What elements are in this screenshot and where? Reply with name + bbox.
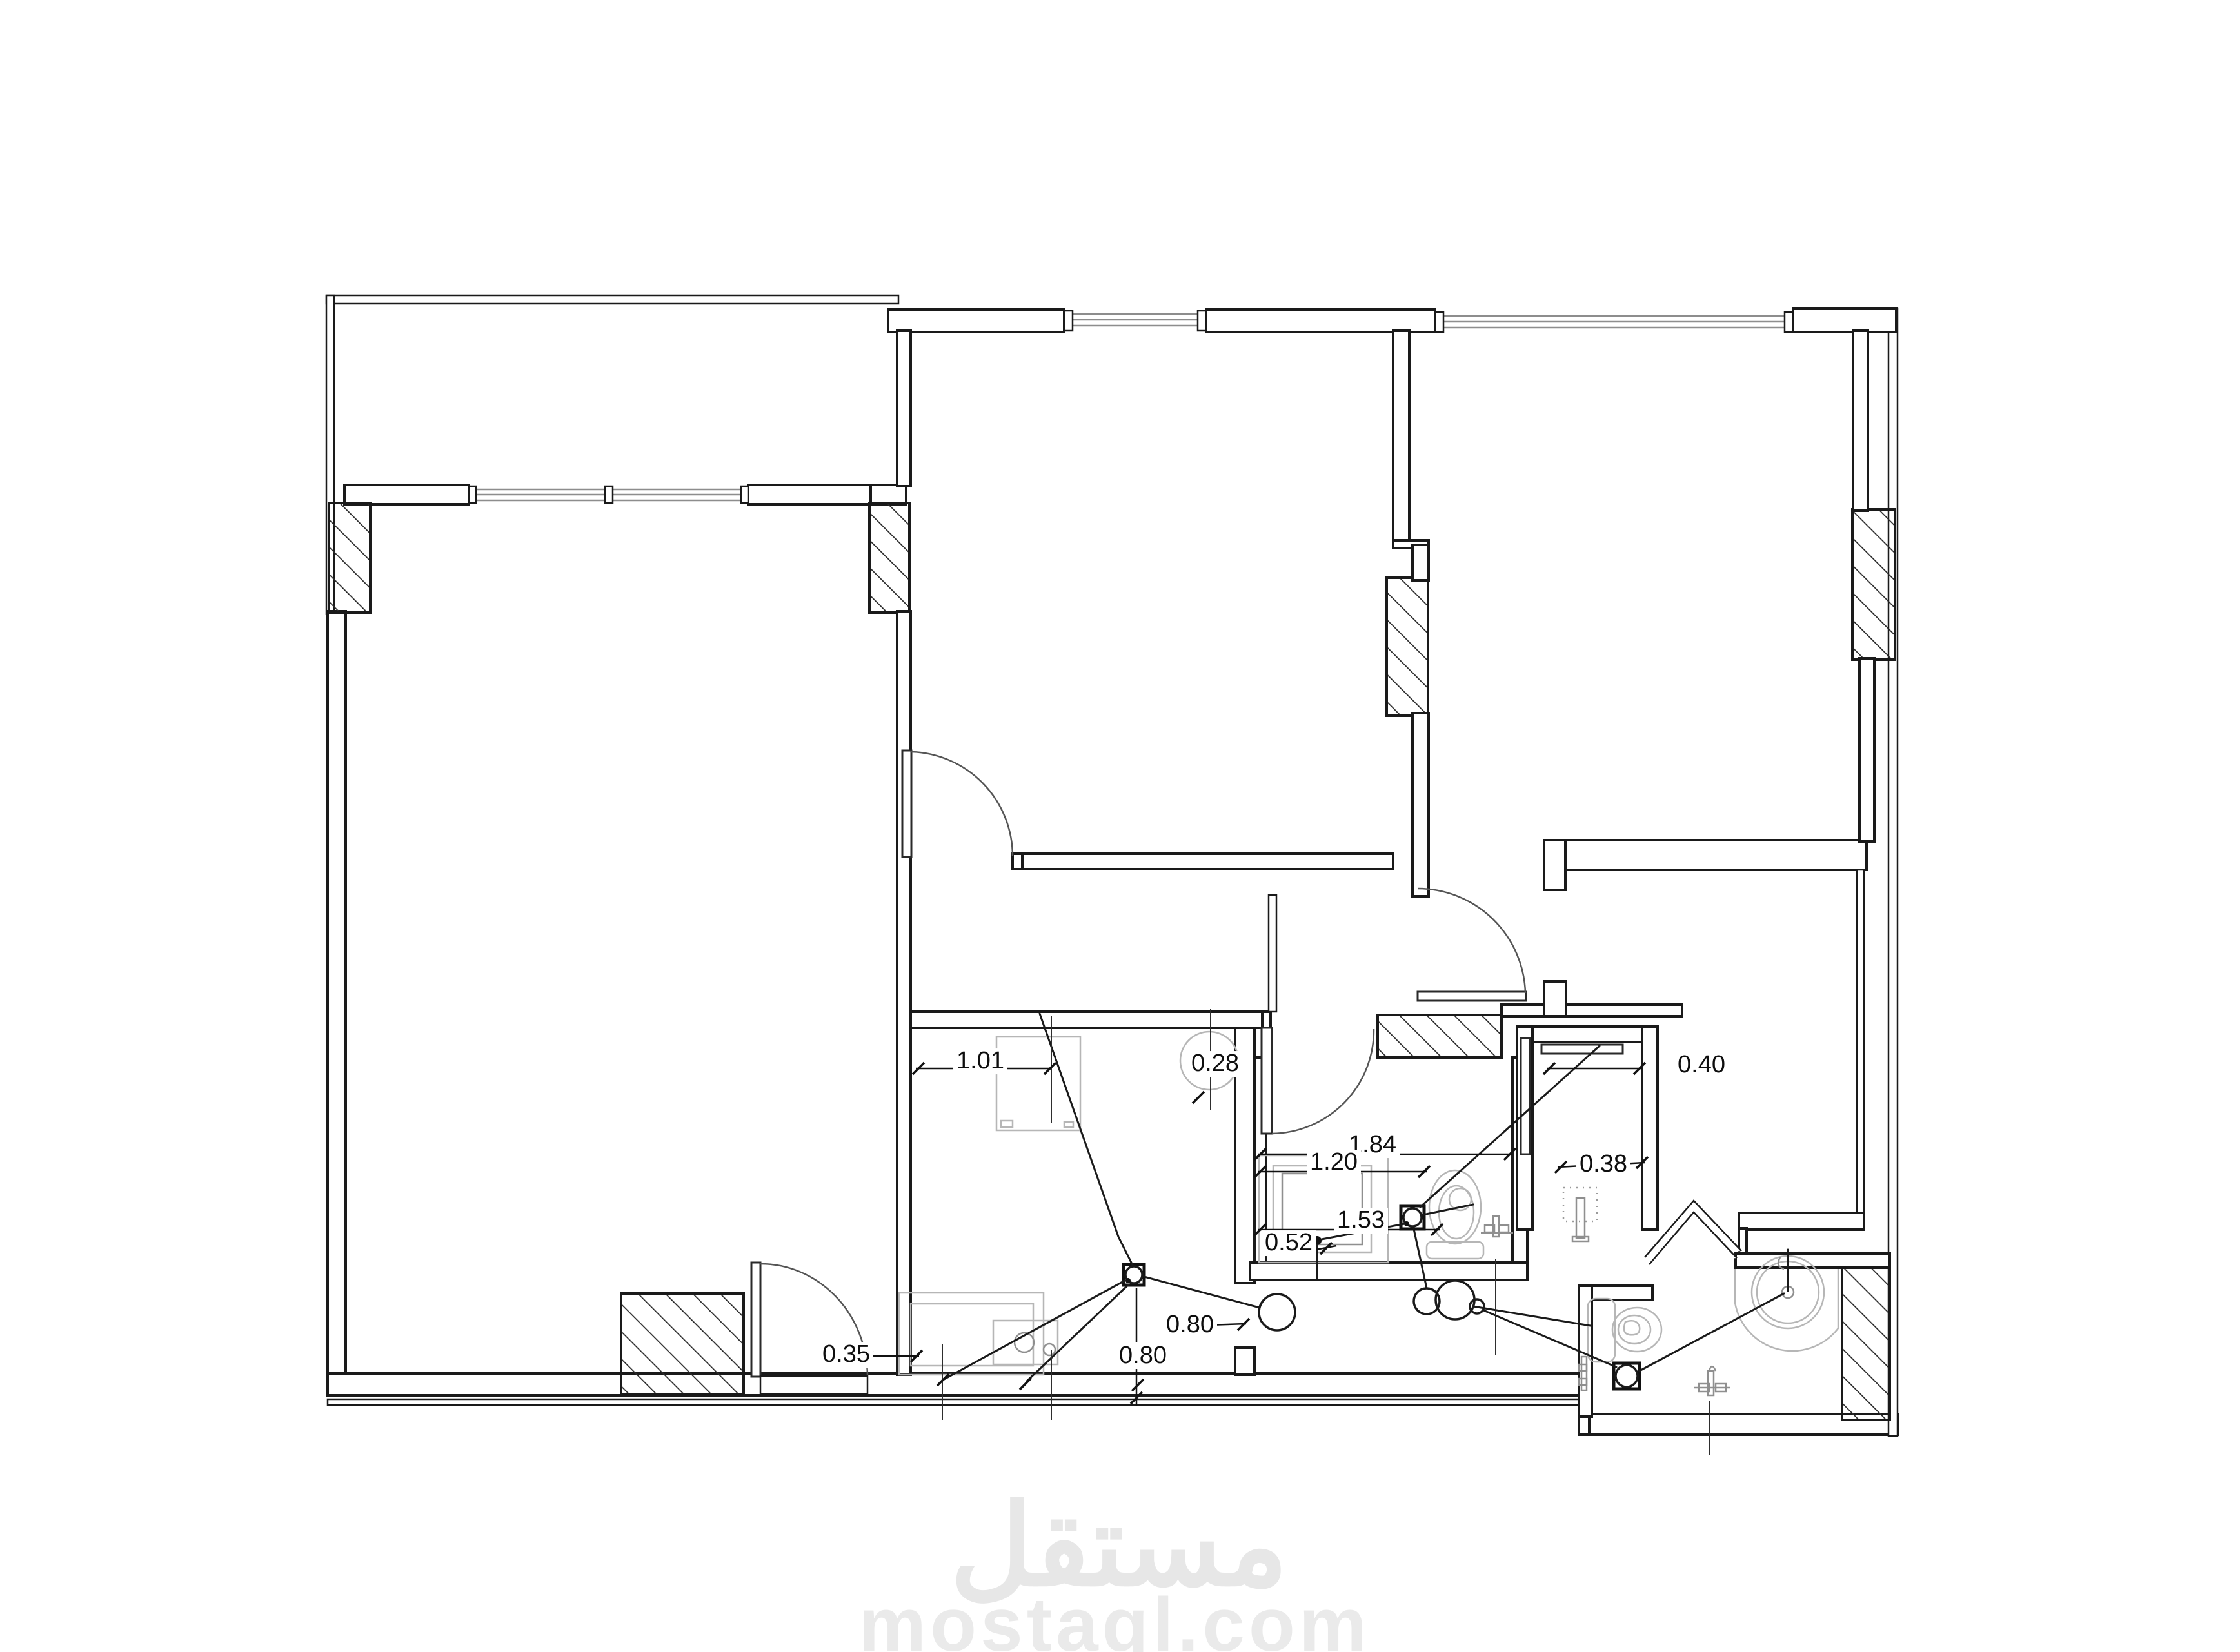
wc-faucet xyxy=(1481,1216,1513,1237)
kitchen-appliance xyxy=(996,1037,1080,1130)
storage-shelf xyxy=(1541,1045,1623,1054)
dimension-label-dim-1-20: 1.20 xyxy=(1307,1150,1361,1175)
bath-toilet xyxy=(1588,1299,1661,1362)
dimension-label-dim-0-80-h: 0.80 xyxy=(1163,1312,1217,1338)
floor-drain xyxy=(1563,1188,1597,1241)
door-middle-room xyxy=(902,751,1013,857)
column-wc-top xyxy=(1378,1015,1502,1057)
door-storage-leaf xyxy=(1521,1038,1530,1154)
watermark-site-text: mostaql.com xyxy=(858,1581,1371,1652)
dimension-label-dim-0-28: 0.28 xyxy=(1188,1051,1242,1077)
column-right-wall xyxy=(1852,509,1895,660)
column-right-window xyxy=(869,503,909,613)
bath-faucet xyxy=(1694,1366,1730,1395)
column-bottom-left xyxy=(621,1293,744,1394)
floor-plan-canvas: 1.010.281.841.201.530.520.800.800.350.40… xyxy=(0,0,2240,1652)
hatched-columns xyxy=(329,503,1895,1420)
column-mid-wall xyxy=(1387,578,1428,716)
light-corridor-3 xyxy=(1436,1281,1474,1319)
floor-plan-drawing xyxy=(0,0,2240,1652)
interior-walls xyxy=(897,331,1890,1417)
dimension-label-dim-1-53: 1.53 xyxy=(1334,1208,1388,1234)
kitchen-sink-counter xyxy=(899,1293,1058,1375)
door-wc xyxy=(1262,1028,1374,1134)
junction-box-bath xyxy=(1614,1363,1640,1389)
entrance-door-chevron xyxy=(1645,1201,1741,1264)
dimension-label-dim-0-52: 0.52 xyxy=(1262,1230,1316,1256)
dimension-label-dim-0-38: 0.38 xyxy=(1576,1152,1630,1177)
column-left-window xyxy=(329,503,370,613)
window-top-a xyxy=(1064,311,1206,331)
dimension-label-dim-0-80-v: 0.80 xyxy=(1116,1343,1170,1369)
bath-basin xyxy=(1735,1256,1838,1351)
dimension-label-dim-1-01: 1.01 xyxy=(953,1048,1007,1074)
column-bath-right xyxy=(1842,1261,1890,1420)
wc-toilet xyxy=(1427,1170,1483,1259)
door-hall xyxy=(1418,889,1526,1001)
junction-box-wc xyxy=(1401,1206,1424,1229)
window-band-left xyxy=(344,485,906,504)
junction-box-kitchen xyxy=(1124,1264,1144,1285)
dimension-label-dim-0-40: 0.40 xyxy=(1674,1052,1729,1078)
light-corridor-1 xyxy=(1259,1294,1295,1330)
dimension-label-dim-0-35: 0.35 xyxy=(819,1342,873,1368)
window-top-b xyxy=(1435,312,1793,332)
